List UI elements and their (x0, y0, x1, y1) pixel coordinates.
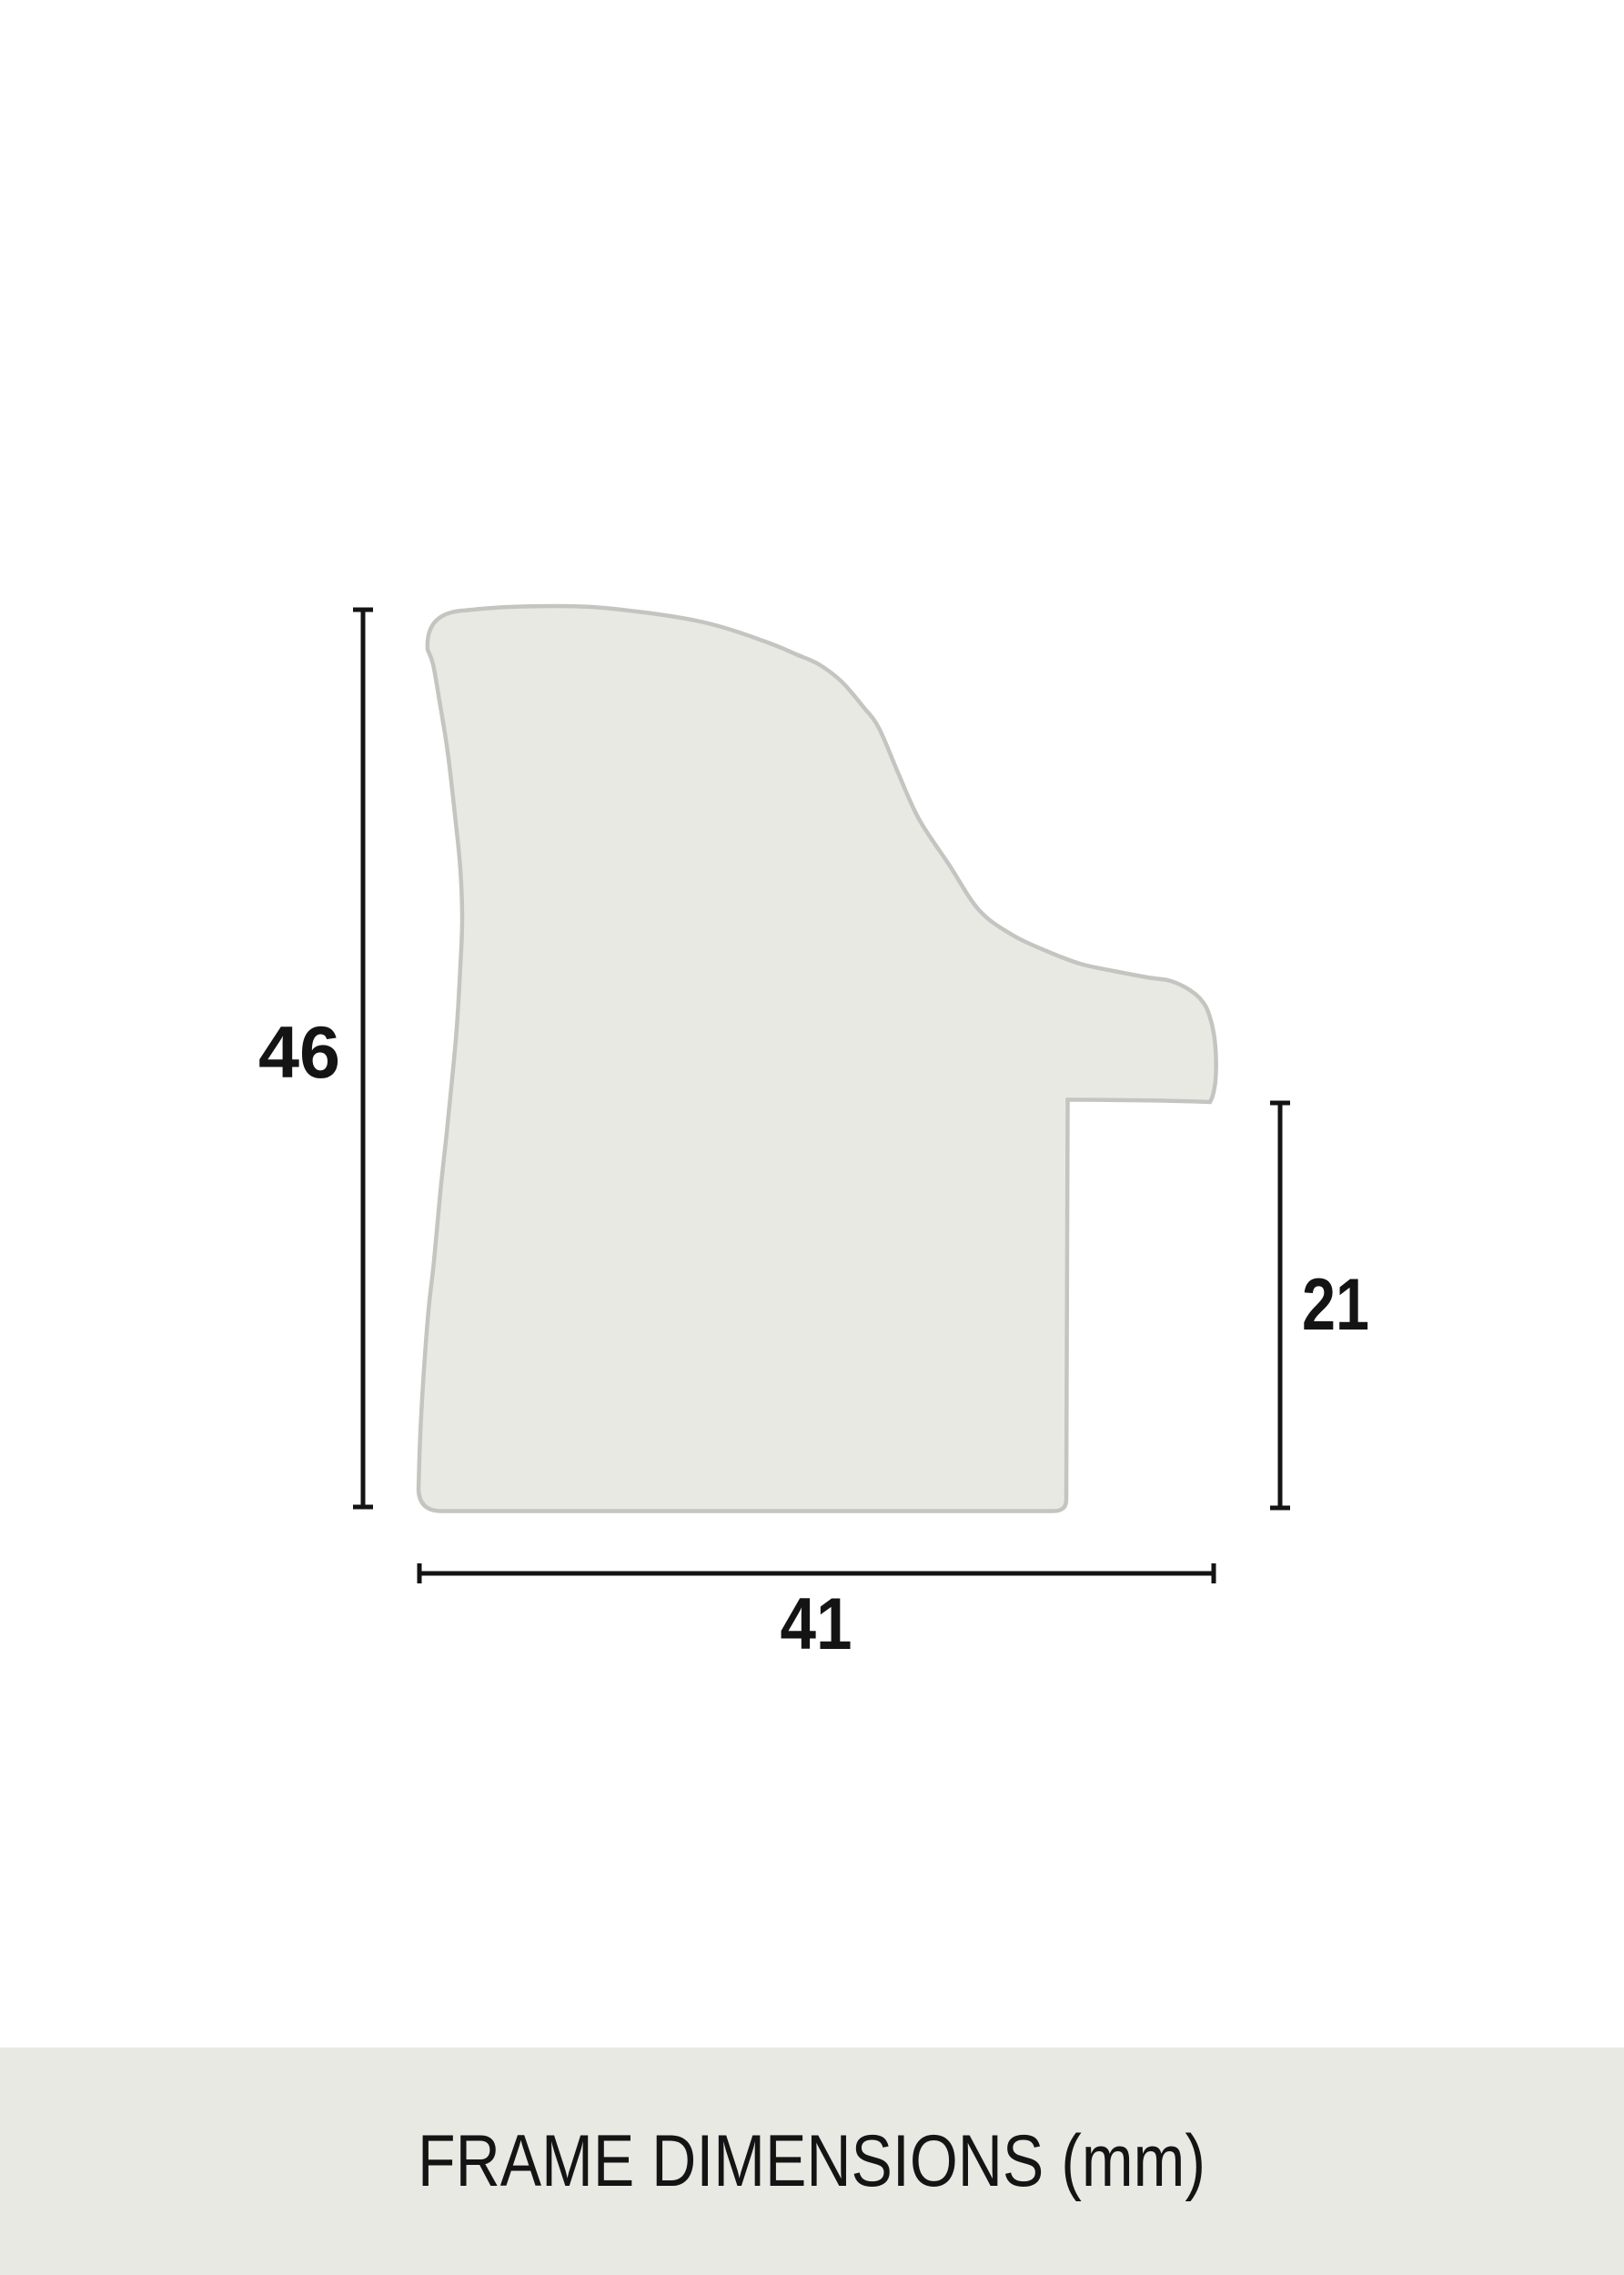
svg-text:21: 21 (1302, 1264, 1369, 1346)
svg-text:FRAME DIMENSIONS (mm): FRAME DIMENSIONS (mm) (418, 2120, 1205, 2202)
svg-text:41: 41 (781, 1583, 852, 1665)
svg-text:46: 46 (258, 1012, 340, 1094)
